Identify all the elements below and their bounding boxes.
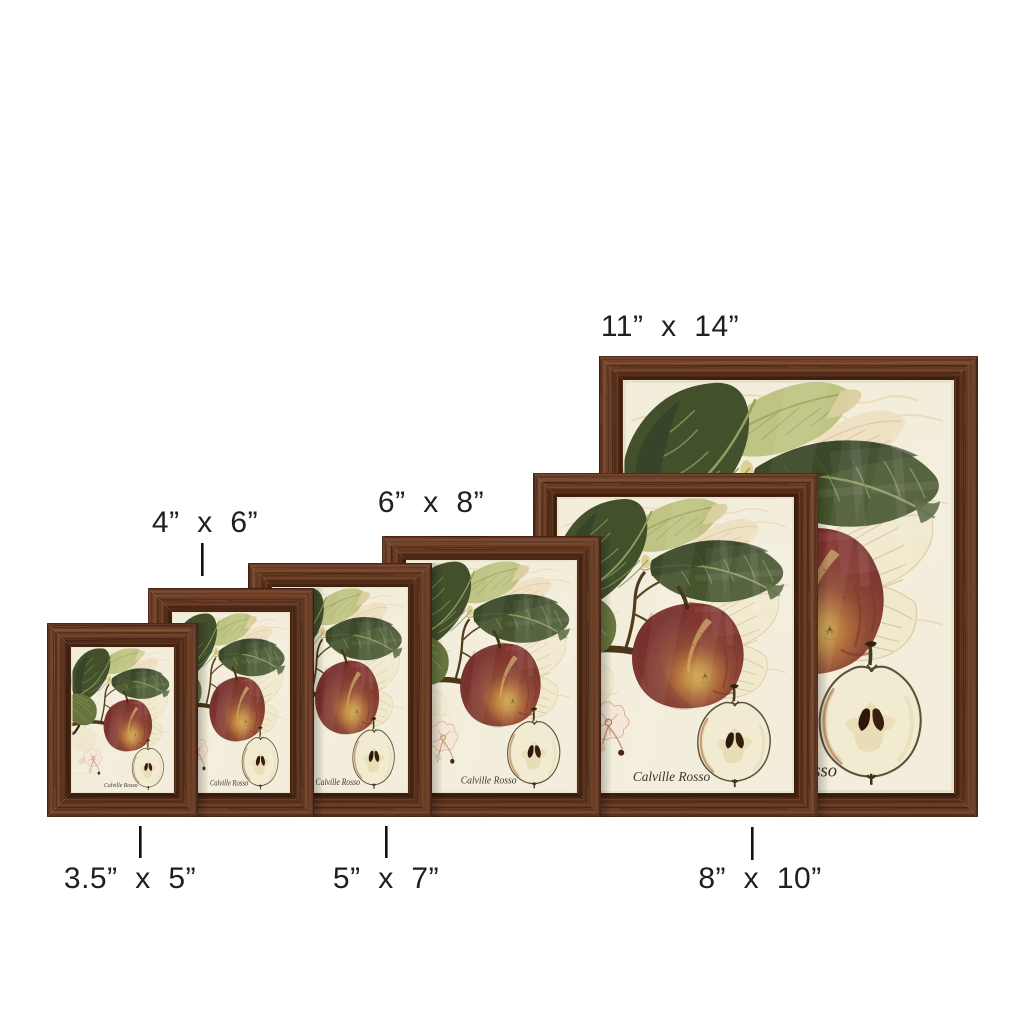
svg-text:8” x 10”: 8” x 10” xyxy=(698,862,821,895)
svg-text:3.5” x 5”: 3.5” x 5” xyxy=(64,862,196,895)
svg-text:6” x 8”: 6” x 8” xyxy=(378,486,484,519)
svg-text:4” x 6”: 4” x 6” xyxy=(152,506,258,539)
svg-text:5” x 7”: 5” x 7” xyxy=(333,862,439,895)
svg-text:11” x 14”: 11” x 14” xyxy=(601,310,739,343)
